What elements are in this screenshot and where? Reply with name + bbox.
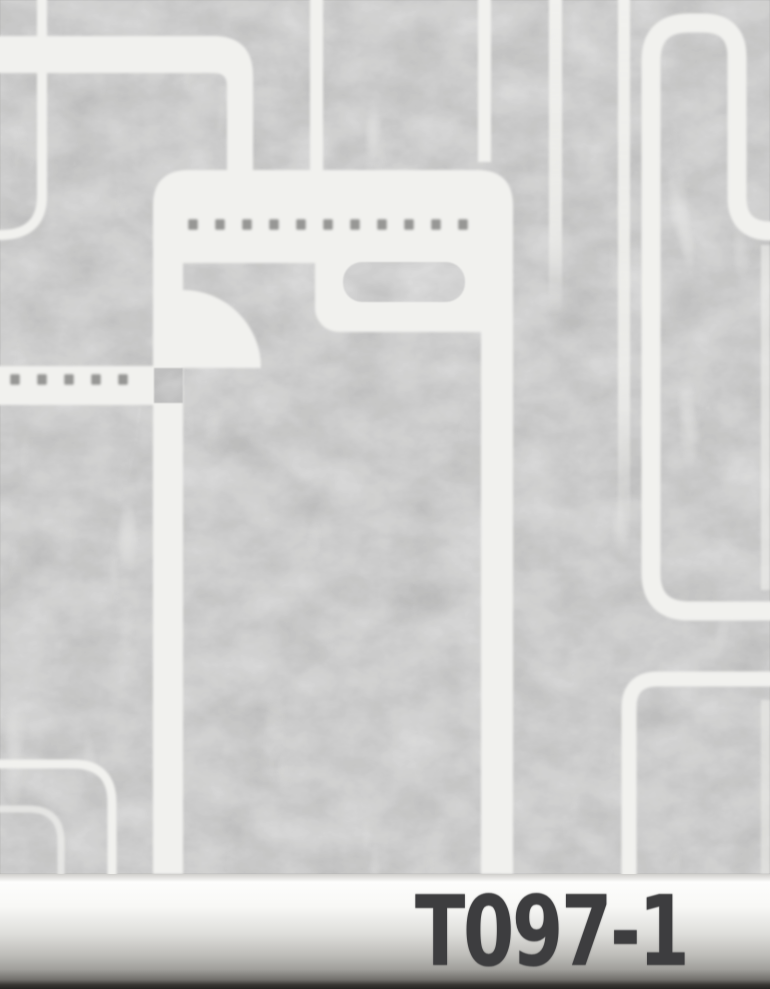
product-code-label: T097-1 [415,883,687,980]
pipe-right-edge-strip-lower [761,700,770,874]
inner-slot [343,262,465,302]
wallpaper-texture [0,0,770,874]
pipe-thin-drop-1 [310,0,323,172]
pipe-thin-drop-3 [549,0,562,315]
pipe-thin-drop-2 [478,0,491,162]
pipe-right-edge-strip-upper [761,245,770,590]
junction-square [154,368,183,403]
product-code-bar: T097-1 [0,874,770,989]
dotted-band-left [0,366,156,405]
wallpaper-sample-photo: T097-1 [0,0,770,989]
pipe-thin-drop-4 [618,0,630,545]
frame-right-band [481,240,513,874]
frame-left-band [153,240,183,874]
